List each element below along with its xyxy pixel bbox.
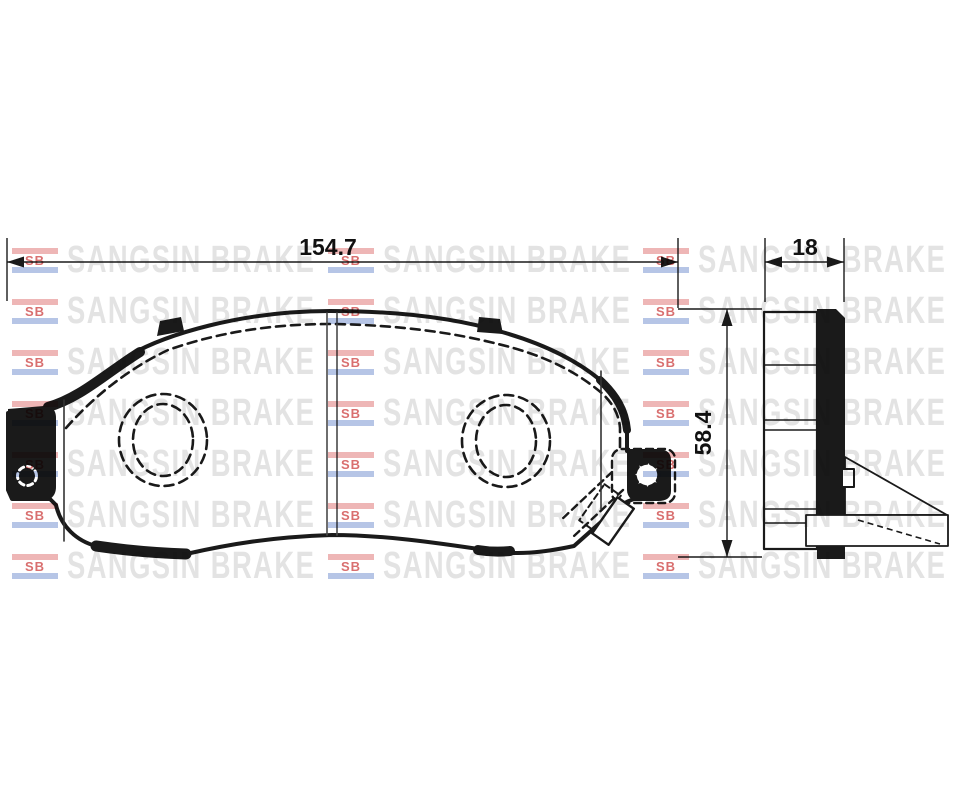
width-arrow-left <box>7 257 24 268</box>
thickness-arrow-right <box>827 257 844 268</box>
width-arrow-right <box>661 257 678 268</box>
dimension-thickness: 18 <box>765 234 844 302</box>
width-dimension-label: 154.7 <box>299 234 357 260</box>
product-image: 154.7 18 <box>0 0 960 800</box>
side-view <box>764 309 948 559</box>
thickness-dimension-label: 18 <box>792 234 818 260</box>
front-view <box>8 311 675 554</box>
brake-pad-technical-drawing: 154.7 18 <box>0 0 960 800</box>
height-arrow-top <box>722 309 733 326</box>
thickness-arrow-left <box>765 257 782 268</box>
wear-indicator-side-arm <box>845 457 947 515</box>
height-dimension-label: 58.4 <box>690 410 716 455</box>
dimension-height: 58.4 <box>678 309 762 557</box>
height-arrow-bottom <box>722 540 733 557</box>
left-ear <box>8 406 56 501</box>
top-tab-right <box>477 317 503 334</box>
dimension-width: 154.7 <box>7 234 678 308</box>
wear-indicator-side-bar <box>806 515 948 546</box>
right-ear-hole <box>635 463 659 487</box>
bottom-right-thick-edge <box>478 550 510 552</box>
backplate-outline <box>8 311 669 554</box>
backplate-side-clip <box>842 469 854 487</box>
